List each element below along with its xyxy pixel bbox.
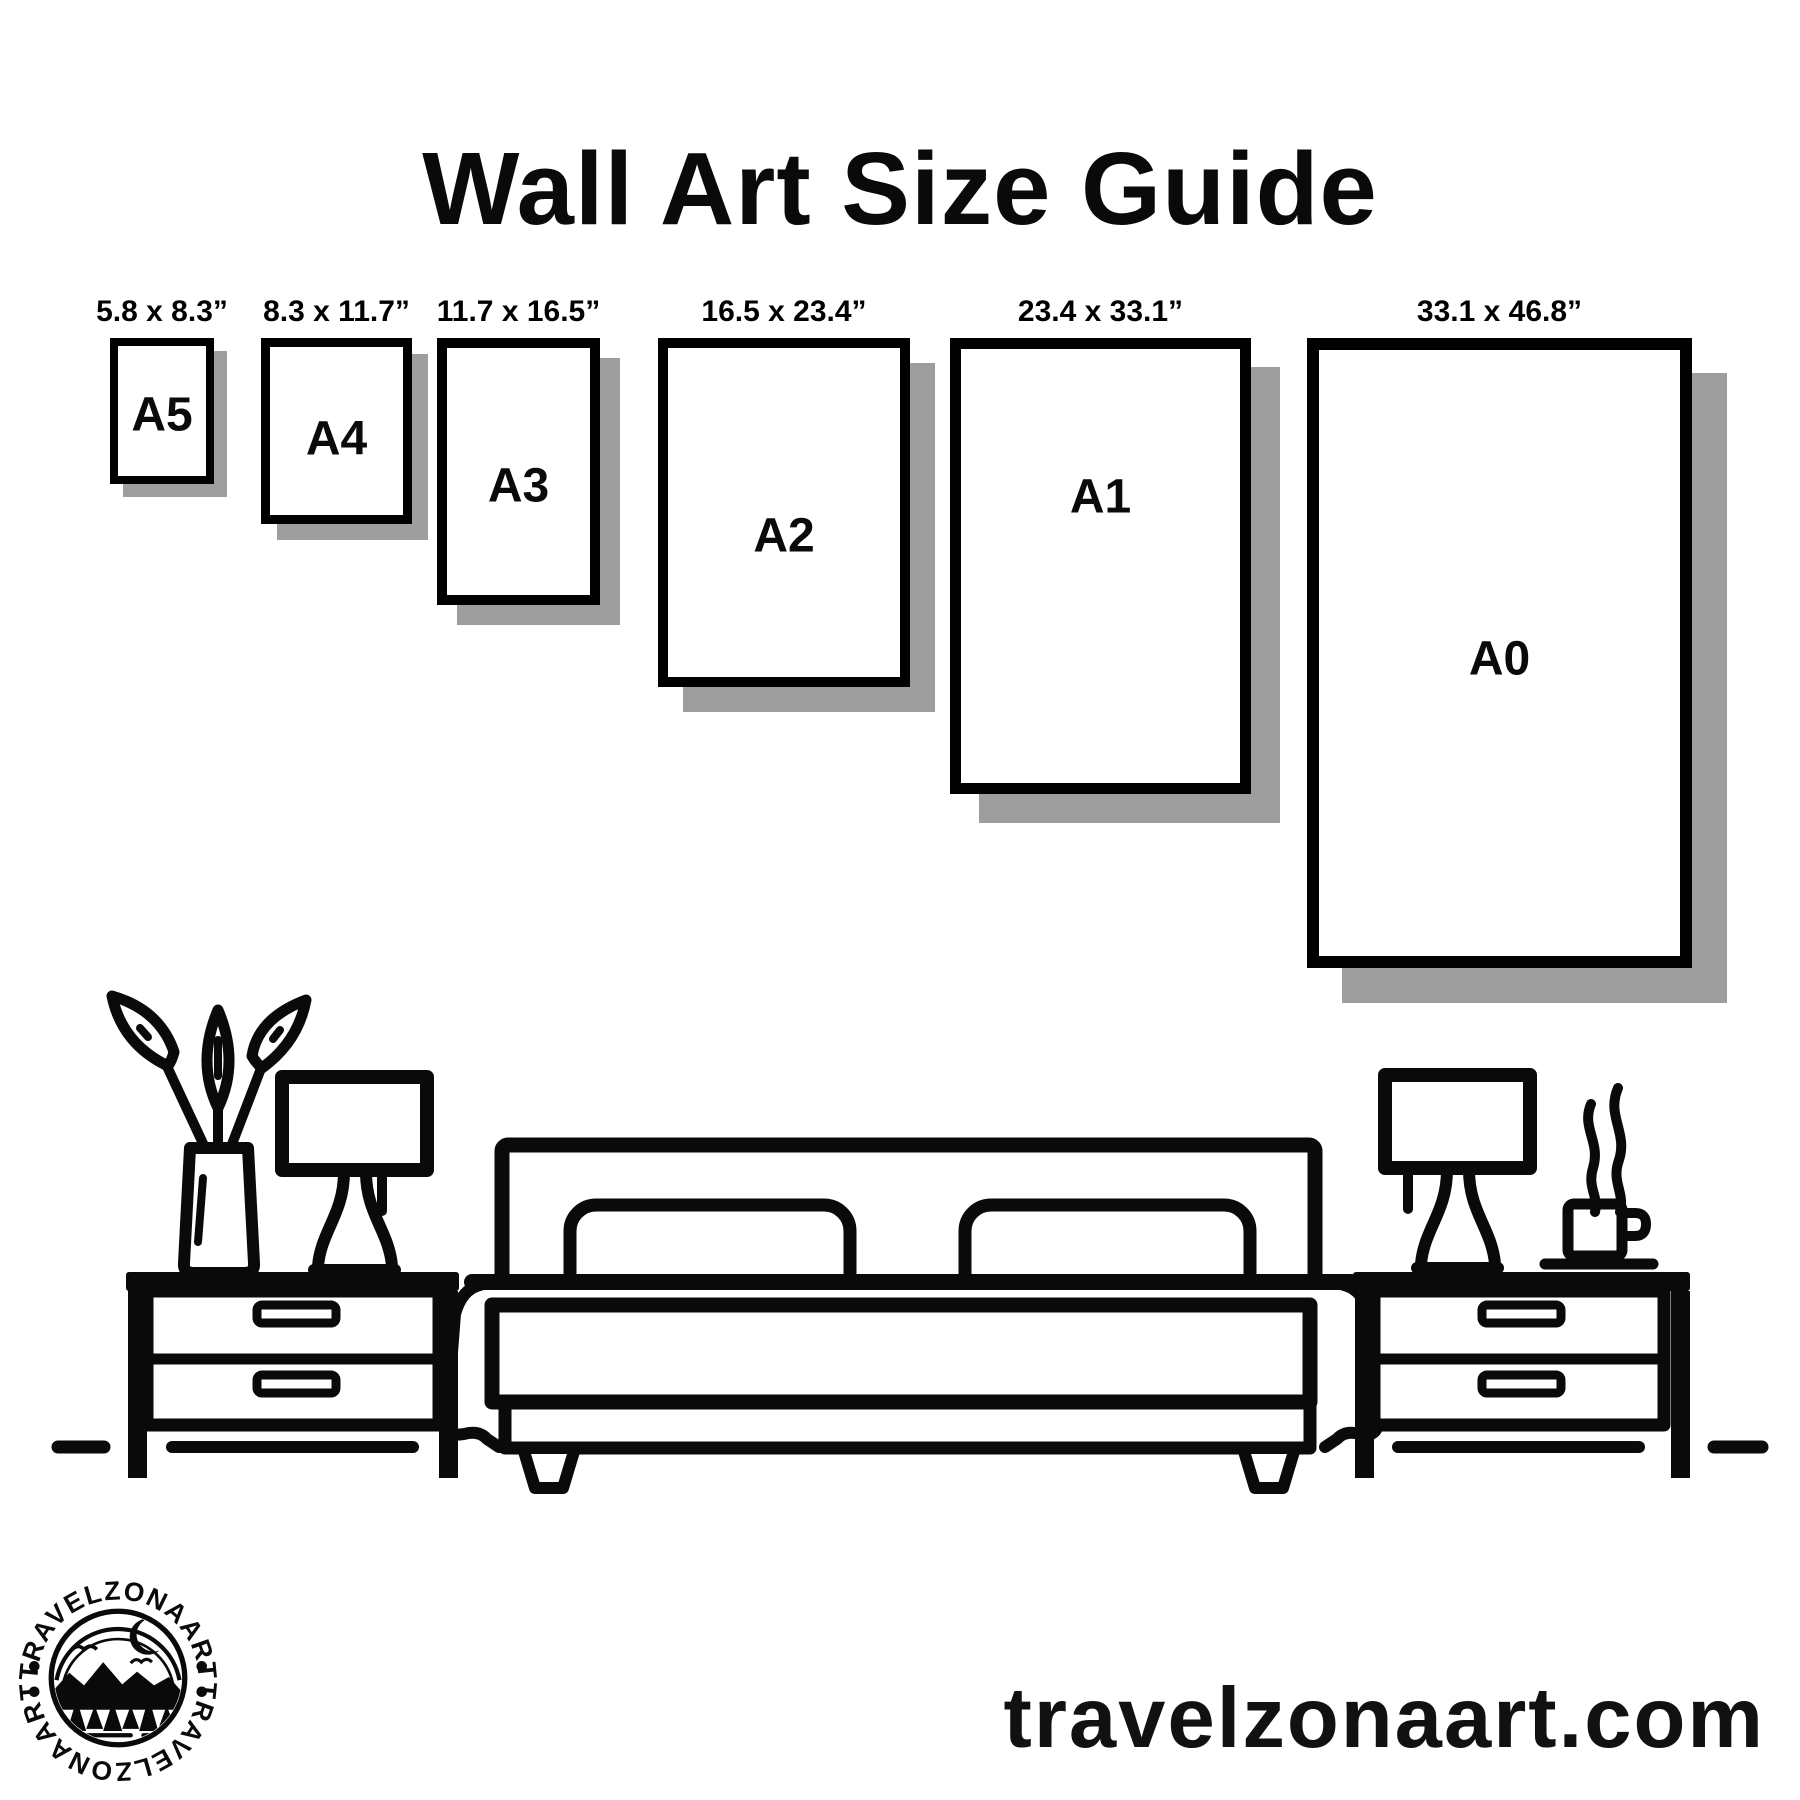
website-url: travelzonaart.com bbox=[1004, 1676, 1765, 1761]
nightstand-leg bbox=[1671, 1291, 1690, 1478]
drawer-handle bbox=[1482, 1375, 1561, 1393]
lamp-shade bbox=[1385, 1075, 1530, 1168]
lamp-stem bbox=[318, 1172, 344, 1266]
paper-size-item: 8.3 x 11.7” A4 bbox=[261, 338, 412, 524]
size-dimensions-label: 23.4 x 33.1” bbox=[1018, 295, 1183, 329]
lamp-shade bbox=[282, 1077, 427, 1170]
paper-size-name: A5 bbox=[131, 387, 192, 442]
steam-line bbox=[1588, 1104, 1596, 1212]
paper-size-name: A4 bbox=[306, 412, 367, 467]
paper-size-box: A4 bbox=[261, 338, 412, 524]
drawer-handle bbox=[257, 1375, 336, 1393]
blanket-front bbox=[492, 1305, 1310, 1402]
coffee-mug-icon bbox=[1545, 1088, 1653, 1264]
steam-line bbox=[1614, 1088, 1621, 1212]
paper-size-box: A5 bbox=[110, 338, 214, 484]
size-dimensions-label: 33.1 x 46.8” bbox=[1417, 295, 1582, 329]
size-dimensions-label: 16.5 x 23.4” bbox=[701, 295, 866, 329]
drawer-handle bbox=[257, 1305, 336, 1323]
table-lamp-right-icon bbox=[1385, 1075, 1530, 1268]
paper-size-item: 16.5 x 23.4” A2 bbox=[658, 338, 910, 687]
paper-size-box: A2 bbox=[658, 338, 910, 687]
paper-size-item: 23.4 x 33.1” A1 bbox=[950, 338, 1251, 794]
paper-size-item: 33.1 x 46.8” A0 bbox=[1307, 338, 1692, 968]
vase bbox=[184, 1148, 254, 1273]
vase-accent bbox=[198, 1178, 203, 1242]
bed-leg-left bbox=[523, 1448, 575, 1488]
leaf-vein bbox=[273, 1030, 280, 1039]
paper-size-item: 5.8 x 8.3” A5 bbox=[110, 338, 214, 484]
page-title: Wall Art Size Guide bbox=[0, 137, 1800, 240]
lamp-stem bbox=[1469, 1170, 1495, 1264]
logo-dot bbox=[196, 1686, 207, 1697]
size-dimensions-label: 11.7 x 16.5” bbox=[437, 295, 600, 329]
nightstand-left bbox=[126, 1272, 459, 1478]
water-line bbox=[59, 1733, 133, 1737]
paper-size-name: A0 bbox=[1469, 632, 1530, 687]
paper-size-box: A3 bbox=[437, 338, 600, 605]
lamp-stem bbox=[1421, 1170, 1447, 1264]
logo-dot bbox=[196, 1661, 207, 1672]
logo-arch bbox=[57, 1629, 180, 1680]
drawer-handle bbox=[1482, 1305, 1561, 1323]
paper-size-name: A3 bbox=[488, 459, 549, 514]
size-dimensions-label: 8.3 x 11.7” bbox=[263, 295, 410, 329]
paper-size-box: A0 bbox=[1307, 338, 1692, 968]
size-dimensions-label: 5.8 x 8.3” bbox=[96, 295, 228, 329]
plant-stem bbox=[164, 1060, 207, 1152]
bird-icon bbox=[131, 1659, 152, 1663]
paper-size-box: A1 bbox=[950, 338, 1251, 794]
bed-leg-right bbox=[1243, 1448, 1295, 1488]
bird-icon bbox=[71, 1646, 96, 1650]
bed bbox=[446, 1145, 1377, 1488]
table-lamp-left-icon bbox=[282, 1077, 427, 1270]
mountains-icon bbox=[42, 1662, 193, 1710]
logo-dot bbox=[29, 1686, 40, 1697]
paper-size-name: A1 bbox=[1070, 469, 1131, 524]
paper-size-item: 11.7 x 16.5” A3 bbox=[437, 338, 600, 605]
brand-logo: TRAVELZONAART TRAVELZONAART bbox=[12, 1572, 224, 1784]
logo-dot bbox=[29, 1661, 40, 1672]
paper-size-name: A2 bbox=[753, 508, 814, 563]
nightstand-right bbox=[1353, 1272, 1690, 1478]
bedroom-scene-illustration bbox=[0, 980, 1800, 1520]
